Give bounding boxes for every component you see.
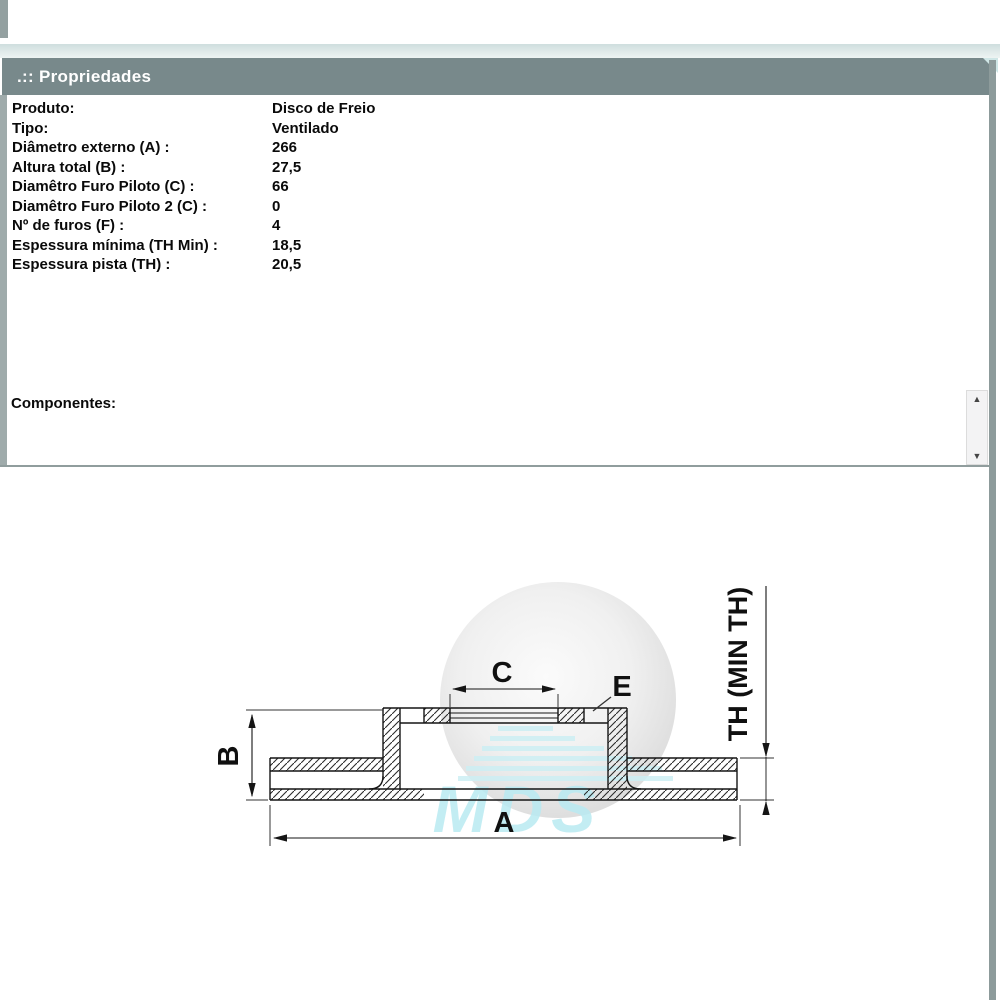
dim-label-e: E: [612, 671, 631, 703]
dim-label-c: C: [492, 657, 513, 689]
brake-disc-technical-drawing: MDS: [0, 0, 1000, 1000]
properties-window: .:: Propriedades Produto:Disco de FreioT…: [0, 0, 1000, 1000]
dim-label-th: TH (MIN TH): [723, 587, 753, 741]
dim-label-a: A: [494, 807, 515, 839]
watermark-text: MDS: [433, 772, 604, 846]
mds-watermark: MDS: [433, 582, 676, 846]
dim-label-b: B: [213, 746, 245, 767]
